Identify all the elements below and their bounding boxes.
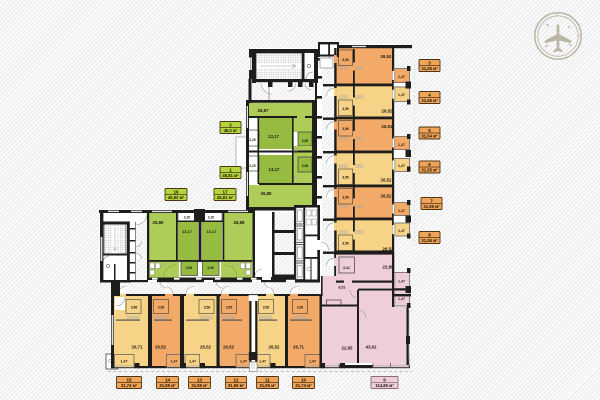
svg-text:3,56: 3,56: [342, 176, 349, 180]
svg-text:45,92 м²: 45,92 м²: [168, 195, 185, 200]
svg-text:1,47: 1,47: [398, 229, 405, 233]
svg-text:1,47: 1,47: [189, 360, 196, 364]
svg-text:6: 6: [428, 162, 431, 167]
svg-text:22,65: 22,65: [342, 346, 354, 351]
svg-text:1,47: 1,47: [171, 360, 178, 364]
svg-text:31,54 м²: 31,54 м²: [421, 133, 438, 138]
svg-text:1,47: 1,47: [398, 280, 405, 284]
svg-text:26,52: 26,52: [381, 54, 393, 59]
svg-text:3,56: 3,56: [342, 196, 349, 200]
svg-text:31,74 м²: 31,74 м²: [121, 383, 138, 388]
svg-text:31,55 м²: 31,55 м²: [423, 204, 440, 209]
svg-text:3,56: 3,56: [297, 306, 304, 310]
svg-text:26,52: 26,52: [200, 345, 212, 350]
svg-text:45,81 м²: 45,81 м²: [217, 195, 234, 200]
svg-text:3: 3: [428, 60, 431, 65]
svg-text:45,81 м²: 45,81 м²: [222, 173, 239, 178]
svg-text:3,56: 3,56: [302, 139, 309, 143]
svg-text:16: 16: [173, 189, 179, 194]
svg-text:1,47: 1,47: [398, 93, 405, 97]
svg-text:13,17: 13,17: [207, 229, 217, 234]
svg-text:3,41: 3,41: [343, 266, 350, 270]
svg-text:5: 5: [428, 128, 431, 133]
svg-text:26,71: 26,71: [293, 345, 305, 350]
svg-text:3,56: 3,56: [263, 306, 270, 310]
svg-text:26,52: 26,52: [382, 109, 394, 114]
svg-text:3,56: 3,56: [302, 164, 309, 168]
svg-text:31,55 м²: 31,55 м²: [228, 383, 245, 388]
svg-text:1,47: 1,47: [398, 297, 405, 301]
svg-text:4: 4: [428, 92, 431, 97]
svg-text:31,55 м²: 31,55 м²: [421, 66, 438, 71]
svg-text:31,55 м²: 31,55 м²: [421, 167, 438, 172]
svg-text:7: 7: [430, 198, 433, 203]
svg-text:3,56: 3,56: [342, 127, 349, 131]
svg-text:114,85 м²: 114,85 м²: [375, 383, 394, 388]
svg-text:26,52: 26,52: [155, 345, 167, 350]
svg-text:45,0 м²: 45,0 м²: [224, 128, 238, 133]
svg-text:26,88: 26,88: [234, 220, 246, 225]
svg-text:26,52: 26,52: [269, 345, 281, 350]
svg-text:1: 1: [229, 167, 232, 172]
svg-text:1,47: 1,47: [121, 360, 128, 364]
svg-text:1,47: 1,47: [398, 75, 405, 79]
svg-text:2,20: 2,20: [249, 164, 256, 168]
svg-text:13,17: 13,17: [268, 134, 280, 139]
svg-text:2,20: 2,20: [184, 216, 191, 220]
svg-text:2,20: 2,20: [208, 216, 215, 220]
svg-text:31,55 м²: 31,55 м²: [159, 383, 176, 388]
svg-text:43,02: 43,02: [366, 345, 378, 350]
svg-text:26,88: 26,88: [261, 191, 273, 196]
svg-text:13: 13: [197, 377, 203, 382]
svg-text:26,89: 26,89: [153, 220, 165, 225]
svg-text:3,56: 3,56: [131, 306, 138, 310]
svg-text:3,56: 3,56: [342, 107, 349, 111]
svg-text:26,51: 26,51: [382, 124, 394, 129]
svg-text:26,71: 26,71: [132, 345, 144, 350]
svg-text:3,56: 3,56: [342, 58, 349, 62]
svg-text:3,55: 3,55: [226, 306, 233, 310]
svg-text:12: 12: [233, 377, 239, 382]
svg-text:3,56: 3,56: [158, 306, 165, 310]
svg-text:13,17: 13,17: [269, 167, 281, 172]
svg-text:31,55 м²: 31,55 м²: [191, 383, 208, 388]
svg-text:2: 2: [229, 122, 232, 127]
svg-text:8,51: 8,51: [339, 286, 346, 290]
svg-text:31,74 м²: 31,74 м²: [295, 383, 312, 388]
svg-text:8: 8: [428, 232, 431, 237]
svg-text:13,17: 13,17: [182, 229, 192, 234]
svg-text:1,47: 1,47: [398, 209, 405, 213]
svg-text:1,47: 1,47: [398, 143, 405, 147]
svg-text:1,47: 1,47: [309, 360, 316, 364]
svg-text:31,55 м²: 31,55 м²: [421, 98, 438, 103]
svg-text:15: 15: [126, 377, 132, 382]
svg-text:26,52: 26,52: [381, 178, 393, 183]
svg-text:1,47: 1,47: [398, 164, 405, 168]
svg-text:26,87: 26,87: [258, 108, 270, 113]
svg-text:3,56: 3,56: [186, 266, 193, 270]
svg-text:3,56: 3,56: [207, 266, 214, 270]
svg-text:1,47: 1,47: [259, 360, 266, 364]
svg-text:26,52: 26,52: [223, 345, 235, 350]
svg-text:17: 17: [222, 189, 228, 194]
svg-text:2,20: 2,20: [249, 138, 256, 142]
svg-text:10: 10: [301, 377, 307, 382]
svg-text:14: 14: [165, 377, 171, 382]
svg-text:9: 9: [383, 377, 386, 382]
svg-text:1,47: 1,47: [240, 360, 247, 364]
svg-text:3,56: 3,56: [204, 306, 211, 310]
svg-text:11: 11: [265, 377, 270, 382]
svg-text:3,56: 3,56: [342, 242, 349, 246]
svg-text:31,55 м²: 31,55 м²: [259, 383, 276, 388]
svg-text:31,55 м²: 31,55 м²: [421, 238, 438, 243]
svg-text:26,52: 26,52: [381, 194, 393, 199]
